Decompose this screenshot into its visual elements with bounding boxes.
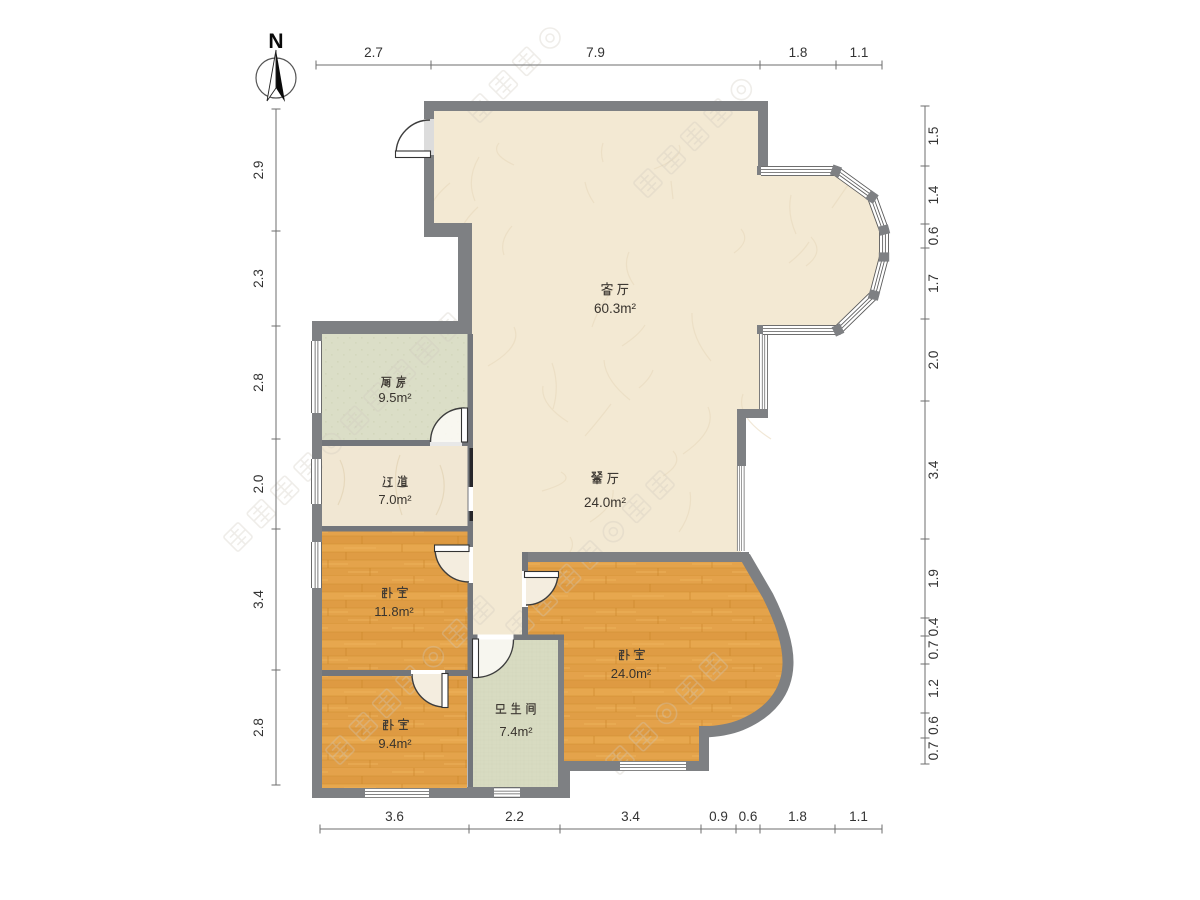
svg-text:2.8: 2.8	[251, 718, 266, 737]
svg-text:2.0: 2.0	[251, 475, 266, 494]
svg-text:1.8: 1.8	[789, 45, 808, 60]
svg-text:2.0: 2.0	[926, 351, 941, 370]
svg-text:0.4: 0.4	[926, 617, 941, 636]
svg-text:1.1: 1.1	[850, 45, 869, 60]
svg-text:3.4: 3.4	[926, 460, 941, 479]
svg-text:0.6: 0.6	[926, 716, 941, 735]
svg-text:24.0m²: 24.0m²	[584, 495, 627, 510]
svg-text:2.7: 2.7	[364, 45, 383, 60]
svg-text:7.0m²: 7.0m²	[378, 492, 412, 507]
svg-text:2.3: 2.3	[251, 269, 266, 288]
svg-text:0.7: 0.7	[926, 641, 941, 660]
svg-text:7.4m²: 7.4m²	[499, 724, 533, 739]
svg-text:3.4: 3.4	[251, 590, 266, 609]
svg-text:11.8m²: 11.8m²	[374, 604, 414, 619]
svg-text:1.5: 1.5	[926, 127, 941, 146]
svg-text:2.8: 2.8	[251, 373, 266, 392]
svg-text:1.4: 1.4	[926, 185, 941, 204]
svg-text:0.7: 0.7	[926, 742, 941, 761]
svg-text:1.7: 1.7	[926, 274, 941, 293]
svg-text:7.9: 7.9	[586, 45, 605, 60]
svg-text:0.6: 0.6	[926, 227, 941, 246]
svg-text:0.9: 0.9	[709, 809, 728, 824]
svg-text:24.0m²: 24.0m²	[611, 666, 652, 681]
svg-text:1.1: 1.1	[849, 809, 868, 824]
svg-text:1.9: 1.9	[926, 569, 941, 588]
svg-text:60.3m²: 60.3m²	[594, 301, 637, 316]
svg-text:3.6: 3.6	[385, 809, 404, 824]
svg-text:9.4m²: 9.4m²	[378, 736, 412, 751]
svg-text:1.8: 1.8	[788, 809, 807, 824]
svg-text:0.6: 0.6	[739, 809, 758, 824]
svg-text:2.2: 2.2	[505, 809, 524, 824]
svg-text:1.2: 1.2	[926, 679, 941, 698]
svg-text:3.4: 3.4	[621, 809, 640, 824]
svg-text:2.9: 2.9	[251, 161, 266, 180]
svg-text:N: N	[268, 30, 283, 53]
svg-text:9.5m²: 9.5m²	[378, 390, 412, 405]
